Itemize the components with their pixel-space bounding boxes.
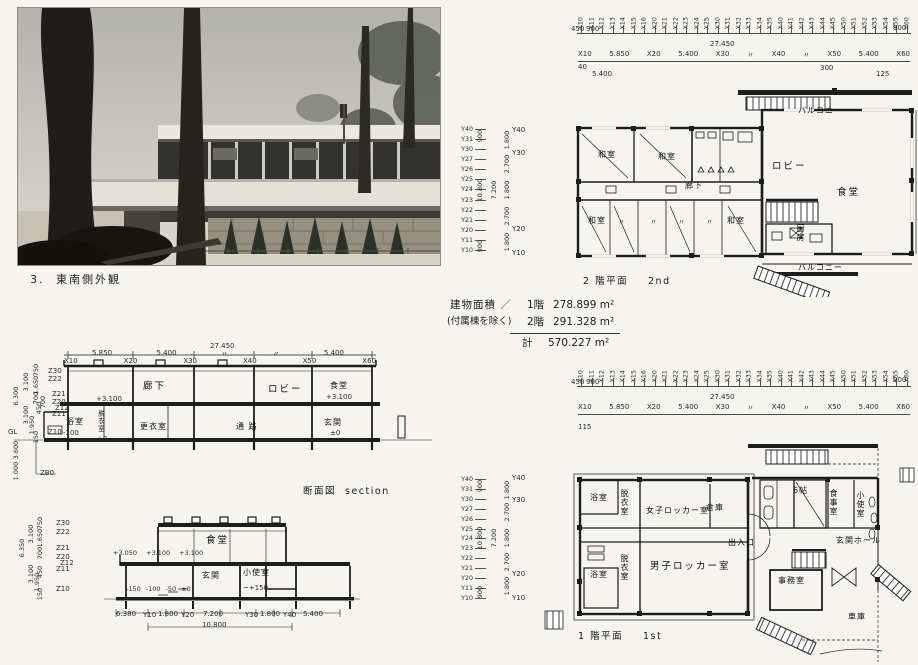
grid-label-cell: X43 <box>807 357 818 377</box>
grid-label-cell: X50 <box>839 357 850 377</box>
sec2-room-kozukai: 小使室 <box>243 569 270 577</box>
sec2-lower-levels: -150-100-50±0 <box>126 585 191 593</box>
plan2-balcony-bottom: バルコニー <box>798 264 843 272</box>
grid-label-cell: X43 <box>807 4 818 24</box>
plan1-dim-900-right: 900 <box>893 377 906 384</box>
plan1-ydim-900-bottom: 900 <box>476 577 484 607</box>
plan1-ydim-900-top: 900 <box>476 471 484 501</box>
grid-label-cell: X44 <box>818 357 829 377</box>
sec1-room-genkan: 玄関 <box>324 419 342 427</box>
building-photo <box>18 8 440 265</box>
sec2-zd-6350: 6.350 <box>18 533 26 563</box>
plan1-dim-line-1 <box>577 386 911 387</box>
grid-label-cell: X45 <box>828 4 839 24</box>
grid-major-label: 5.400 <box>859 50 879 60</box>
sec2-room-genkan: 玄関 <box>202 572 220 580</box>
plan1-room-datsui-a: 脱衣室 <box>620 489 628 516</box>
sec1-level-datsui: ±0 <box>97 436 107 443</box>
area-total-value: 570.227 m² <box>548 338 609 349</box>
grid-label-cell: X42 <box>797 357 808 377</box>
plan2-ydim-10800: 10.800 <box>476 175 484 205</box>
grid-label-cell: X34 <box>755 357 766 377</box>
plan1-room-office: 事務室 <box>778 577 805 585</box>
grid-label-cell: X31 <box>723 357 734 377</box>
area-floor2: 2階 <box>527 317 544 328</box>
grid-major-label: 5.400 <box>678 403 698 413</box>
sec1-level-bath: -100 <box>63 430 79 437</box>
plan2-room-washitsu-c: 和室 <box>588 217 606 225</box>
sec1-zd-6300: 6.300 <box>12 381 20 411</box>
grid-major-label: X10 <box>578 403 592 413</box>
plan1-dim-900-left: 900 <box>586 379 599 386</box>
plan2-dim-line-2 <box>578 61 910 62</box>
plan2-drawing <box>570 82 918 297</box>
sec1-room-bath: 浴室 <box>66 418 84 426</box>
sec1-room-rouka: 廊下 <box>143 382 166 392</box>
area-label: 建物面積 ／ <box>450 300 512 311</box>
sec2-z30: Z30 <box>56 520 70 527</box>
plan2-ditto-1: 〃 <box>618 219 625 226</box>
sec1-z21: Z21 <box>52 391 66 398</box>
grid-label-cell: X55 <box>891 4 902 24</box>
sec2-bd-y40: Y40 <box>283 612 296 619</box>
grid-label-cell: X20 <box>650 357 661 377</box>
plan2-dim-300: 300 <box>820 65 833 72</box>
plan1-dim-overall: 27.450 <box>710 394 735 401</box>
grid-label-cell: X33 <box>744 357 755 377</box>
grid-label-cell: X13 <box>608 4 619 24</box>
plan1-room-men-locker: 男子ロッカー室 <box>650 562 731 572</box>
sec1-zd-1000: 1.000 <box>12 456 20 486</box>
area-floor1-value: 278.899 m² <box>553 300 614 311</box>
grid-label-cell: X12 <box>597 357 608 377</box>
grid-label-cell: X51 <box>849 357 860 377</box>
area-note: (付属棟を除く) <box>447 317 511 327</box>
plan2-ditto-4: 〃 <box>706 219 713 226</box>
grid-label-cell: Y21 <box>456 217 486 224</box>
grid-label-cell: X25 <box>702 357 713 377</box>
plan1-x-grid-strip: X10X11X12X13X14X15X16X20X21X22X23X24X25X… <box>576 357 912 377</box>
section2-drawing <box>8 505 438 655</box>
level-mark: -50 <box>166 585 177 593</box>
plan2-ydim-900-top: 900 <box>476 121 484 151</box>
grid-label-cell: X24 <box>692 357 703 377</box>
grid-label-cell: X15 <box>629 357 640 377</box>
grid-major-label: X30 <box>716 403 730 413</box>
grid-major-label: 〃 <box>747 50 754 60</box>
grid-major-label: 5.400 <box>678 50 698 60</box>
plan2-dim-5400: 5.400 <box>592 71 612 78</box>
plan1-room-entrance: 出入口 <box>728 539 755 547</box>
grid-major-label: X20 <box>647 50 661 60</box>
grid-major-label: X20 <box>647 403 661 413</box>
sec2-bd-6380: 6.380 <box>116 611 136 618</box>
sec1-caption-jp: 断面図 <box>303 487 336 497</box>
grid-label-cell: X30 <box>713 4 724 24</box>
sec2-upper-levels: +3.050+3.100+3.100 <box>113 549 203 557</box>
photo-caption-number: 3. <box>30 274 45 285</box>
plan2-dim-900-right: 900 <box>893 25 906 32</box>
grid-major-label: X40 <box>772 50 786 60</box>
plan1-x-major-row: X105.850X205.400X30〃X40〃X505.400X60 <box>578 403 910 413</box>
grid-label-cell: Y22 <box>456 555 486 562</box>
grid-label-cell: X53 <box>870 4 881 24</box>
grid-label-cell: Y21 <box>456 565 486 572</box>
grid-label-cell: X54 <box>881 357 892 377</box>
photo-caption: 東南側外観 <box>56 274 121 285</box>
grid-label-cell: X52 <box>860 357 871 377</box>
plan1-room-datsui-b: 脱衣室 <box>620 554 628 581</box>
grid-major-label: 5.400 <box>859 403 879 413</box>
plan1-ymajor-y10: Y10 <box>512 595 525 602</box>
sec2-bd-y20: Y20 <box>181 612 194 619</box>
sec1-room-datsui: 脱衣室 <box>97 410 104 433</box>
plan2-room-washitsu-b: 和室 <box>658 153 676 161</box>
area-floor1: 1階 <box>527 300 544 311</box>
grid-label-cell: X31 <box>723 4 734 24</box>
grid-label-cell: X55 <box>891 357 902 377</box>
plan2-x-grid-strip: X10X11X12X13X14X15X16X20X21X22X23X24X25X… <box>576 4 912 24</box>
sec2-zd-3100a: 3.100 <box>27 519 35 549</box>
grid-label-cell: X32 <box>734 357 745 377</box>
grid-label-cell: X11 <box>587 4 598 24</box>
sec2-z21: Z21 <box>56 545 70 552</box>
plan1-title-jp: 1 階平面 <box>578 632 623 642</box>
level-mark: +3.100 <box>146 549 170 557</box>
sec2-bd-1800a: 1.800 <box>158 611 178 618</box>
grid-label-cell: X42 <box>797 4 808 24</box>
plan1-ymajor-y20: Y20 <box>512 571 525 578</box>
grid-label-cell: Y26 <box>456 516 486 523</box>
grid-label-cell: X51 <box>849 4 860 24</box>
sec2-level-kozukai: ~+150 <box>243 585 268 592</box>
plan2-title-jp: 2 階平面 <box>583 277 628 287</box>
sec2-z11: Z11 <box>56 566 70 573</box>
grid-major-label: 5.850 <box>609 403 629 413</box>
grid-major-label: X40 <box>772 403 786 413</box>
grid-label-cell: X40 <box>776 357 787 377</box>
grid-label-cell: Y22 <box>456 207 486 214</box>
section1-drawing <box>8 340 438 492</box>
grid-major-label: X50 <box>827 403 841 413</box>
stone-wall <box>208 218 440 258</box>
grid-label-cell: X14 <box>618 357 629 377</box>
plan1-room-hall: 玄関ホール <box>836 537 881 545</box>
grid-label-cell: X24 <box>692 4 703 24</box>
sec2-zd-450: 450 <box>36 557 44 587</box>
plan2-ymajor-y30: Y30 <box>512 150 525 157</box>
plan2-dim-450: 450 <box>571 26 584 33</box>
grid-label-cell: X22 <box>671 357 682 377</box>
plan2-dim-overall: 27.450 <box>710 41 735 48</box>
grid-label-cell: X52 <box>860 4 871 24</box>
sec1-level-rouka: +3.100 <box>96 396 122 403</box>
sec2-bd-10800: 10.800 <box>202 622 227 629</box>
level-mark: +3.050 <box>113 549 137 557</box>
sec2-z10: Z10 <box>56 586 70 593</box>
grid-label-cell: X10 <box>576 4 587 24</box>
grid-label-cell: Y27 <box>456 506 486 513</box>
plan1-room-kozukai: 小使室 <box>856 491 864 518</box>
scanned-document-page: 3. 東南側外観 X10X11X12X13X14X15X16X20X21X22X… <box>0 0 918 665</box>
plan2-room-kitchen: 厨房 <box>796 224 804 242</box>
level-mark: +3.100 <box>179 549 203 557</box>
plan1-ymajor-y40: Y40 <box>512 475 525 482</box>
sec1-room-tsuro: 通 路 <box>236 423 258 431</box>
plan2-room-lobby: ロビー <box>772 162 807 172</box>
plan1-room-garage: 車庫 <box>848 613 866 621</box>
plan2-dim-line-1 <box>577 33 911 34</box>
plan1-dim-115: 115 <box>578 424 591 431</box>
grid-label-cell: X41 <box>786 357 797 377</box>
area-total-label: 計 <box>522 338 533 349</box>
plan1-corner-mark <box>544 610 564 630</box>
sec1-z11: Z11 <box>52 411 66 418</box>
plan1-room-women-locker: 女子ロッカー室 <box>646 507 709 515</box>
grid-label-cell: X15 <box>629 4 640 24</box>
grid-label-cell: X21 <box>660 4 671 24</box>
sec2-bd-7200: 7.200 <box>203 611 223 618</box>
grid-label-cell: Y26 <box>456 166 486 173</box>
grid-label-cell: X16 <box>639 4 650 24</box>
sec1-zb0: ZB0 <box>40 470 54 477</box>
plan1-ydim-10800: 10.800 <box>476 523 484 553</box>
level-mark: -150 <box>126 585 141 593</box>
plan2-room-rouka: 廊下 <box>685 182 703 190</box>
sec2-room-dining: 食堂 <box>206 536 229 546</box>
plan1-room-dining: 食事室 <box>829 489 837 516</box>
sec1-zd-150: 150 <box>32 422 40 452</box>
plan1-ymajor-y30: Y30 <box>512 497 525 504</box>
area-floor2-value: 291.328 m² <box>553 317 614 328</box>
grid-label-cell: X32 <box>734 4 745 24</box>
grid-major-label: X50 <box>827 50 841 60</box>
sec2-bd-y30: Y30 <box>245 612 258 619</box>
grid-label-cell: X22 <box>671 4 682 24</box>
plan2-ditto-3: 〃 <box>678 219 685 226</box>
grid-label-cell: X23 <box>681 357 692 377</box>
grid-label-cell: X35 <box>765 357 776 377</box>
grid-major-label: 〃 <box>803 50 810 60</box>
level-mark: ±0 <box>181 585 191 593</box>
plan2-ymajor-y20: Y20 <box>512 226 525 233</box>
sec1-zd-700b: 700 <box>39 387 47 417</box>
plan2-balcony-top: バルコニー <box>798 107 843 115</box>
sec1-room-koui: 更衣室 <box>140 423 167 431</box>
sec1-room-lobby: ロビー <box>268 385 303 395</box>
sec1-z10: Z10 <box>48 429 62 436</box>
grid-label-cell: X41 <box>786 4 797 24</box>
grid-label-cell: X54 <box>881 4 892 24</box>
plan2-title-en: 2nd <box>648 277 671 287</box>
grid-label-cell: X23 <box>681 4 692 24</box>
sec1-caption-en: section <box>345 487 390 497</box>
plan2-room-washitsu-a: 和室 <box>598 151 616 159</box>
plan2-x-major-row: X105.850X205.400X30〃X40〃X505.400X60 <box>578 50 910 60</box>
grid-label-cell: X44 <box>818 4 829 24</box>
grid-label-cell: X33 <box>744 4 755 24</box>
sec1-z22: Z22 <box>48 376 62 383</box>
grid-label-cell: X35 <box>765 4 776 24</box>
plan1-room-bath-b: 浴室 <box>590 571 608 579</box>
sec2-bd-y10: Y10 <box>143 612 156 619</box>
grid-major-label: X60 <box>896 403 910 413</box>
grid-label-cell: X14 <box>618 4 629 24</box>
plan2-room-dining: 食堂 <box>837 188 860 198</box>
grid-label-cell: X30 <box>713 357 724 377</box>
plan2-dim-900-left: 900 <box>586 26 599 33</box>
plan2-ydim-7200: 7.200 <box>490 175 498 205</box>
plan1-title-en: 1st <box>643 632 662 642</box>
building-photo-art <box>18 8 440 265</box>
plan2-ydim-inner-4: 1.800 <box>503 227 511 257</box>
plan2-ydim-900-bottom: 900 <box>476 231 484 261</box>
grid-label-cell: X11 <box>587 357 598 377</box>
plan1-ydim-7200: 7.200 <box>490 523 498 553</box>
grid-major-label: X60 <box>896 50 910 60</box>
sec2-bd-1800b: 1.800 <box>260 611 280 618</box>
sec1-room-dining: 食堂 <box>330 382 348 390</box>
plan2-dim-40: 40 <box>578 64 587 71</box>
plan1-ydim-inner-4: 1.800 <box>503 571 511 601</box>
grid-label-cell: X13 <box>608 357 619 377</box>
grid-label-cell: X20 <box>650 4 661 24</box>
sec1-level-genkan: ±0 <box>330 430 340 437</box>
plan1-room-bath-a: 浴室 <box>590 494 608 502</box>
sec2-z22: Z22 <box>56 529 70 536</box>
sec1-zd-3100a: 3.100 <box>22 367 30 397</box>
plan2-ymajor-y10: Y10 <box>512 250 525 257</box>
plan1-dim-450: 450 <box>571 379 584 386</box>
grid-major-label: 〃 <box>747 403 754 413</box>
plan2-ditto-2: 〃 <box>650 219 657 226</box>
sec1-z30: Z30 <box>48 368 62 375</box>
area-total-rule <box>510 333 620 334</box>
sec1-level-dining: +3.100 <box>326 394 352 401</box>
grid-label-cell: X10 <box>576 357 587 377</box>
sec2-bd-5400: 5.400 <box>303 611 323 618</box>
grid-label-cell: X40 <box>776 4 787 24</box>
grid-label-cell: X60 <box>902 357 913 377</box>
plan1-room-storage: 倉庫 <box>706 504 724 512</box>
grid-major-label: X10 <box>578 50 592 60</box>
grid-major-label: 〃 <box>803 403 810 413</box>
plan2-dim-125: 125 <box>876 71 889 78</box>
grid-label-cell: X60 <box>902 4 913 24</box>
grid-label-cell: X12 <box>597 4 608 24</box>
grid-major-label: 5.850 <box>609 50 629 60</box>
grid-label-cell: X25 <box>702 4 713 24</box>
plan2-room-washitsu-d: 和室 <box>727 217 745 225</box>
grid-label-cell: X53 <box>870 357 881 377</box>
grid-label-cell: X50 <box>839 4 850 24</box>
plan1-room-six-mat: 6帖 <box>793 487 808 495</box>
level-mark: -100 <box>146 585 161 593</box>
plan2-ymajor-y40: Y40 <box>512 127 525 134</box>
grid-label-cell: X45 <box>828 357 839 377</box>
grid-major-label: X30 <box>716 50 730 60</box>
grid-label-cell: X21 <box>660 357 671 377</box>
grid-label-cell: X16 <box>639 357 650 377</box>
grid-label-cell: Y27 <box>456 156 486 163</box>
grid-label-cell: X34 <box>755 4 766 24</box>
plan1-dim-line-2 <box>578 414 910 415</box>
